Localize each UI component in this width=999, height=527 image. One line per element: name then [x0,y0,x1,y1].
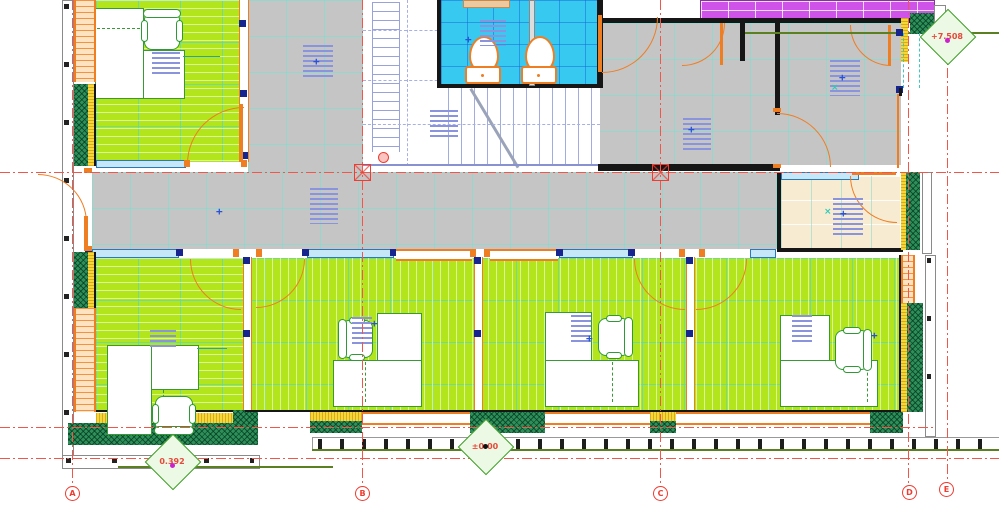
cad-plus-marker: + [216,206,223,217]
cad-plus-marker: + [688,124,695,135]
text-annotation [150,330,176,350]
elevation-marker-entry[interactable]: 0.392 [144,433,200,489]
desk[interactable] [95,8,144,99]
cad-plus-marker: + [839,72,846,83]
cladding-ticks [927,258,931,432]
text-annotation [430,110,458,140]
grid-bubble-e[interactable]: E [939,482,954,497]
wall [777,172,781,252]
door-frame-line [897,94,899,168]
grid-line-horizontal [0,172,999,173]
wc-sink-counter [463,0,510,8]
elevation-marker-ground[interactable]: ±0.00 [457,418,513,474]
wc-wall [437,84,603,88]
text-annotation [310,188,338,224]
grid-intersection-marker [652,164,669,181]
window-band [750,249,776,258]
cad-plus-marker: + [871,330,878,341]
landing-guide-line [363,124,600,125]
door-arc[interactable] [38,174,87,223]
wall [775,23,780,115]
door-post [773,164,781,168]
desk-guide [612,362,613,402]
door-post [233,249,239,257]
wall-junction [896,29,903,36]
wall-junction [240,90,247,97]
exterior-cladding [922,172,932,254]
window-wall [74,308,96,412]
desk[interactable] [545,360,639,407]
wall-segment [490,249,558,261]
wall-junction [302,249,309,256]
grid-bubble-b[interactable]: B [355,486,370,501]
window-band [307,249,394,258]
door-post [679,249,685,257]
text-annotation [833,198,863,238]
window-band [362,412,470,425]
grid-bubble-d[interactable]: D [902,485,917,500]
insulated-wall [907,303,923,412]
room-gray-left-floor [248,0,363,172]
grid-axis-label: D [906,488,913,497]
cad-plus-marker: + [465,34,472,45]
window-band [92,249,179,258]
text-annotation [152,52,180,74]
desk-guide [197,348,227,349]
grid-bubble-a[interactable]: A [65,486,80,501]
desk-guide [183,56,220,57]
cad-plus-marker: + [586,333,593,344]
desk-guide [97,28,140,29]
corridor-floor [92,172,781,250]
stair-edge-line [363,164,600,166]
elevation-label: +7.508 [919,8,975,64]
stairs[interactable] [448,88,600,166]
grid-line-c [660,0,661,487]
facade-magenta-strip [700,0,935,20]
wall-line [899,88,902,96]
desk-guide [365,362,366,402]
door-post [470,249,476,257]
desk[interactable] [107,345,152,435]
door-post [699,249,705,257]
wall-line [94,84,96,166]
office-chair[interactable] [598,318,630,356]
wall-line [94,252,96,308]
grid-axis-label: E [944,485,949,494]
toilet-2[interactable] [521,36,557,84]
wall [598,164,780,171]
level-line [312,449,999,451]
wall-junction [474,257,481,264]
wall-segment [396,249,472,261]
deck-ticks [318,439,999,449]
grid-axis-label: B [359,489,365,498]
grid-line-b [362,0,363,487]
wall-junction [686,257,693,264]
window-band [96,160,186,168]
cad-x-marker: × [831,84,839,93]
grid-bubble-c[interactable]: C [653,486,668,501]
office-chair[interactable] [144,12,180,50]
wall [740,23,745,61]
wall-junction [243,330,250,337]
cladding-ticks [64,4,69,453]
elevation-label: 0.392 [144,433,200,489]
survey-point-marker [378,152,389,163]
wall-junction [474,330,481,337]
landing-guide-line [363,30,448,31]
grid-axis-label: C [658,489,664,498]
wall-junction [686,330,693,337]
wall-junction [556,249,563,256]
desk[interactable] [333,360,422,407]
window-band [676,412,870,425]
grid-axis-label: A [69,489,75,498]
stair-flight-up [372,2,400,152]
grid-intersection-marker [354,164,371,181]
elevation-marker-upper[interactable]: +7.508 [919,8,975,64]
window-band [559,249,633,258]
grid-line-d [908,0,909,486]
cad-plus-marker: + [840,208,847,219]
cad-plus-marker: + [313,56,320,67]
landing-guide-line [363,80,448,81]
text-annotation [792,315,812,345]
cad-plus-marker: + [371,318,378,329]
office-chair[interactable] [835,330,869,370]
wall-junction [176,249,183,256]
wc-wall [437,0,441,88]
door-post [773,108,781,112]
landing-guide-line [407,0,408,166]
door-post [256,249,262,257]
wall-junction [243,257,250,264]
window-wall [74,0,96,82]
cad-x-marker: × [824,208,832,217]
wall-junction [239,20,246,27]
window-band [545,412,650,425]
grid-line-e [947,14,948,483]
wall-pier [233,410,258,424]
window-band [781,172,859,180]
wall-pier [870,412,903,433]
floor-plan-canvas: + + + × + + [0,0,999,527]
grid-line-a [72,0,73,487]
text-annotation [480,20,506,46]
wall-junction [628,249,635,256]
wall [777,248,903,252]
opening-dashed-line [903,33,904,88]
